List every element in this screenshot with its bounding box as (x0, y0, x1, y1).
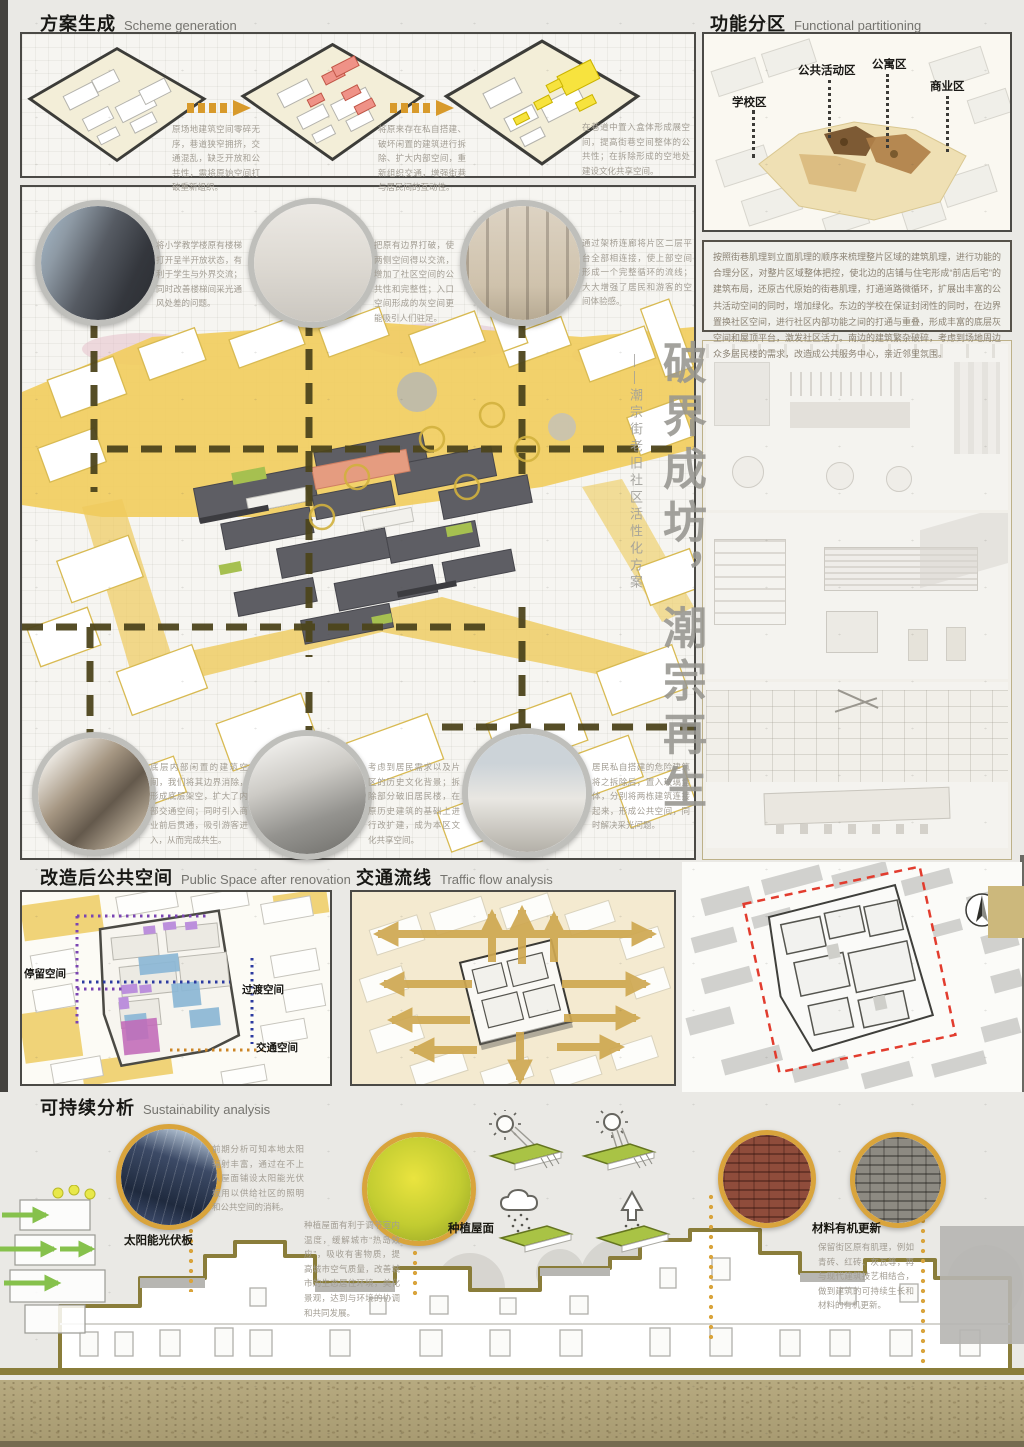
scheme-generation-panel: 原场地建筑空间零碎无序，巷道狭窄拥挤，交通混乱，缺乏开放和公共性，需将原始空间打… (20, 32, 696, 178)
poster-board: 方案生成Scheme generation 原场地建筑空间零碎无序，巷道狭窄拥挤… (0, 0, 1024, 1447)
solar-panel-photo (116, 1124, 222, 1230)
section-title-en: Scheme generation (124, 18, 237, 33)
material-caption: 保留街区原有肌理，例如青砖、红砖、灰瓦等，再与现代建筑技艺相结合，做到建筑的可持… (818, 1240, 914, 1313)
zone-label-apartment: 公寓区 (872, 56, 907, 72)
label-transition-space: 过渡空间 (242, 982, 284, 997)
render-cafe-interior (706, 344, 1008, 510)
detail-photo-glass-stair (242, 730, 372, 860)
public-space-panel (20, 890, 332, 1086)
gold-dotted-connector (708, 1192, 714, 1342)
gold-dotted-connector (188, 1216, 194, 1292)
zone-label-commercial: 商业区 (930, 78, 965, 94)
detail-photo-stilted-ground (32, 732, 156, 856)
traffic-flow-illustration (352, 892, 674, 1084)
strategy-caption: 通过架桥连廊将片区二层平台全部相连接，使上部空间形成一个完整循环的流线；大大增强… (582, 236, 692, 309)
label-staying-space: 停留空间 (24, 966, 66, 981)
left-edge-strip (0, 0, 8, 1092)
poster-main-title: 破界成坊，潮宗再生 (648, 340, 712, 960)
gray-brick-photo (850, 1132, 946, 1228)
site-plan (682, 862, 1022, 1092)
public-space-header: 改造后公共空间Public Space after renovation (40, 864, 351, 890)
strategy-caption: 底层内部闲置的建筑空间，我们将其边界消除，形成底层架空，扩大了内部交通空间；同时… (150, 760, 248, 848)
sustainability-header: 可持续分析Sustainability analysis (40, 1094, 270, 1120)
strategy-caption: 考虑到居民需求以及片区的历史文化背景；拆除部分破旧居民楼，在原历史建筑的基础上进… (368, 760, 460, 848)
section-title-zh: 方案生成 (40, 14, 116, 34)
gold-dotted-connector (920, 1216, 926, 1366)
traffic-flow-panel (350, 890, 676, 1086)
green-roof-caption: 种植屋面有利于调节室内温度，缓解城市“热岛效应”，吸收有害物质，提高城市空气质量… (304, 1218, 400, 1320)
section-title-zh: 改造后公共空间 (40, 868, 173, 888)
red-brick-photo (718, 1130, 816, 1228)
zone-label-school: 学校区 (732, 94, 767, 110)
zone-leader-line (946, 96, 949, 152)
section-title-zh: 可持续分析 (40, 1098, 135, 1118)
material-renewal-label: 材料有机更新 (812, 1220, 881, 1236)
gold-dotted-connector (412, 1238, 418, 1298)
site-plan-illustration (682, 862, 1022, 1092)
render-library-interior (706, 682, 1008, 848)
rain-cloud-icon (501, 1190, 537, 1232)
label-traffic-space: 交通空间 (256, 1040, 298, 1055)
section-title-en: Functional partitioning (794, 18, 921, 33)
section-title-en: Public Space after renovation (181, 872, 351, 887)
poster-sub-title: ——潮宗街老旧社区活性化方案 (626, 354, 645, 784)
section-diagram-ventilation (0, 1185, 130, 1345)
section-title-zh: 交通流线 (356, 868, 432, 888)
strategy-caption: 把原有边界打破，使两侧空间得以交流，增加了社区空间的公共性和完整性；入口空间形成… (374, 238, 454, 326)
gray-backdrop-block (940, 1226, 1024, 1344)
detail-photo-bridge-corridor (460, 200, 586, 326)
solar-panel-label: 太阳能光伏板 (124, 1232, 193, 1248)
partition-description: 按照街巷肌理到立面肌理的顺序来梳理整片区域的建筑肌理，进行功能的合理分区，对整片… (702, 240, 1012, 332)
interior-renders-panel (702, 340, 1012, 860)
footer-band (0, 1380, 1024, 1447)
zone-label-public-activity: 公共活动区 (798, 62, 856, 78)
scheme-step-caption: 在巷道中置入盒体形成展空间，提高街巷空间整体的公共性；在拆除形成的空地处建设文化… (582, 120, 690, 178)
detail-photo-rooftop (462, 728, 592, 858)
traffic-flow-header: 交通流线Traffic flow analysis (356, 864, 553, 890)
section-title-zh: 功能分区 (710, 14, 786, 34)
zone-leader-line (828, 80, 831, 138)
scheme-step-caption: 原场地建筑空间零碎无序，巷道狭窄拥挤，交通混乱，缺乏开放和公共性，需将原始空间打… (172, 122, 260, 195)
detail-photo-boundary-interior (248, 198, 378, 328)
zone-leader-line (752, 110, 755, 158)
rain-roof-diagram (495, 1188, 577, 1260)
sun-roof-diagram (578, 1110, 660, 1182)
scheme-generation-header: 方案生成Scheme generation (40, 10, 237, 36)
zoning-axon-illustration (704, 34, 1010, 230)
section-title-en: Sustainability analysis (143, 1102, 270, 1117)
solar-caption: 前期分析可知本地太阳辐射丰富，通过在不上人屋面铺设太阳能光伏板用以供给社区的照明… (212, 1142, 304, 1215)
evaporation-roof-diagram (592, 1188, 674, 1260)
sun-roof-diagram (485, 1110, 567, 1182)
functional-partitioning-panel (702, 32, 1012, 232)
green-roof-label: 种植屋面 (448, 1220, 494, 1236)
render-shop-interior (706, 513, 1008, 679)
scheme-step-caption: 将原来存在私自搭建、破坏闲置的建筑进行拆除、扩大内部空间，重新组织交通，增强街巷… (378, 122, 466, 195)
zone-leader-line (886, 74, 889, 148)
detail-photo-school-stair (35, 200, 161, 326)
strategy-caption: 将小学教学楼原有楼梯打开呈半开放状态，有利于学生与外界交流；同时改善楼梯间采光通… (156, 238, 242, 311)
section-title-en: Traffic flow analysis (440, 872, 553, 887)
tan-corner-block (988, 886, 1024, 938)
functional-partitioning-header: 功能分区Functional partitioning (710, 10, 921, 36)
